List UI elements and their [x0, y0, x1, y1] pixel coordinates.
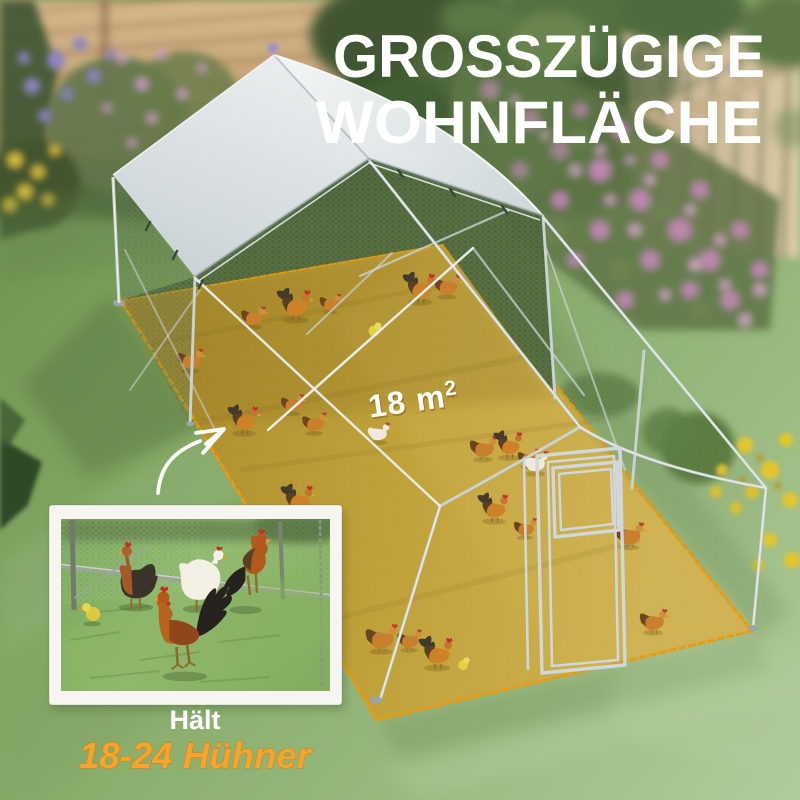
svg-text:GROSSZÜGIGE: GROSSZÜGIGE [333, 23, 765, 90]
svg-text:18-24 Hühner: 18-24 Hühner [79, 735, 313, 776]
svg-text:Hält: Hält [169, 705, 220, 735]
svg-text:WOHNFLÄCHE: WOHNFLÄCHE [316, 89, 763, 156]
